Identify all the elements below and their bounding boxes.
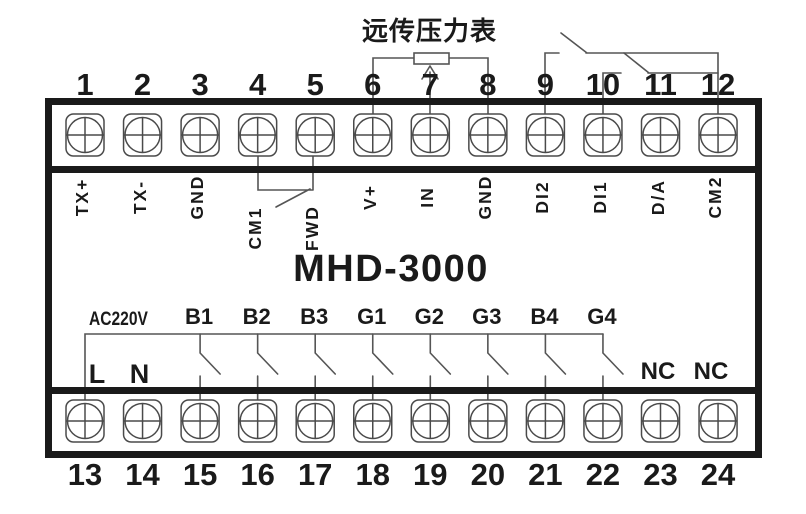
terminal-8-screw	[469, 114, 507, 156]
terminal-21-screw	[526, 400, 564, 442]
terminal-24-number: 24	[683, 459, 753, 490]
terminal-wiring-diagram: 远传压力表 MHD-3000 AC220V 1TX+2TX-3GND4CM15F…	[0, 0, 806, 514]
terminal-17-screw	[296, 400, 334, 442]
terminal-6-screw	[354, 114, 392, 156]
terminal-12-number: 12	[683, 69, 753, 100]
device-model-title: MHD-3000	[241, 250, 541, 288]
terminal-6-label: V+	[360, 154, 380, 240]
terminal-11-label: D/A	[648, 154, 668, 240]
terminal-5-screw	[296, 114, 334, 156]
terminal-10-screw	[584, 114, 622, 156]
terminal-7-label: IN	[417, 154, 437, 240]
terminal-14-label: N	[100, 361, 180, 388]
terminal-22-screw	[584, 400, 622, 442]
terminal-24-label: NC	[671, 360, 751, 384]
terminal-4-screw	[239, 114, 277, 156]
terminal-2-label: TX-	[130, 154, 150, 240]
terminal-1-label: TX+	[72, 154, 92, 240]
terminal-22-label: G4	[562, 306, 642, 328]
terminal-1-screw	[66, 114, 104, 156]
terminal-3-screw	[181, 114, 219, 156]
terminal-5-label: FWD	[302, 185, 322, 271]
bottom-strip-divider	[48, 387, 759, 394]
terminal-screws-top	[66, 114, 737, 156]
terminal-10-label: DI1	[590, 154, 610, 240]
terminal-screws-bottom	[66, 400, 737, 442]
terminal-12-label: CM2	[705, 154, 725, 240]
ac-power-label: AC220V	[89, 310, 148, 329]
terminal-2-screw	[124, 114, 162, 156]
terminal-3-label: GND	[187, 154, 207, 240]
terminal-14-screw	[124, 400, 162, 442]
terminal-11-screw	[642, 114, 680, 156]
terminal-24-screw	[699, 400, 737, 442]
terminal-8-label: GND	[475, 154, 495, 240]
terminal-18-screw	[354, 400, 392, 442]
pressure-gauge-label: 远传压力表	[362, 18, 497, 44]
terminal-19-screw	[411, 400, 449, 442]
terminal-23-screw	[642, 400, 680, 442]
terminal-7-screw	[411, 114, 449, 156]
terminal-13-screw	[66, 400, 104, 442]
terminal-9-screw	[526, 114, 564, 156]
terminal-15-screw	[181, 400, 219, 442]
potentiometer-symbol	[414, 53, 449, 64]
terminal-20-screw	[469, 400, 507, 442]
terminal-12-screw	[699, 114, 737, 156]
terminal-4-label: CM1	[245, 185, 265, 271]
terminal-16-screw	[239, 400, 277, 442]
terminal-9-label: DI2	[532, 154, 552, 240]
